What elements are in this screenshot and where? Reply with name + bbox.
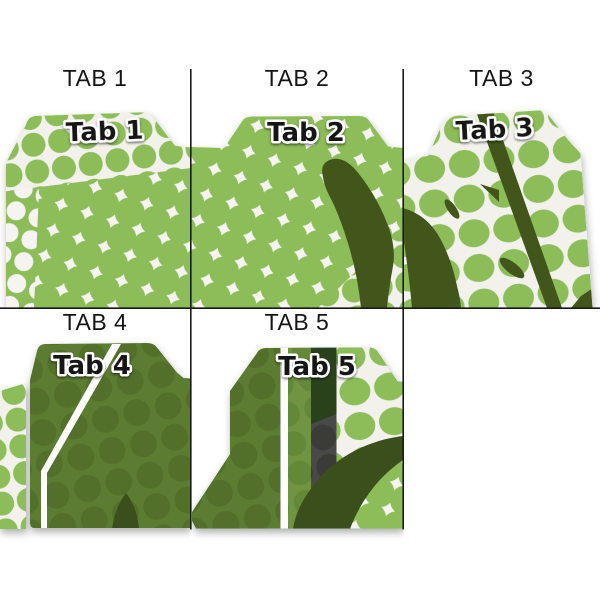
folder-4-back-strip: [0, 383, 26, 529]
folder-option-3[interactable]: Tab 3: [403, 60, 600, 310]
folder-option-1[interactable]: Tab 1: [0, 60, 191, 310]
cell-label-tab-3: TAB 3: [403, 66, 600, 91]
folder-option-5[interactable]: Tab 5: [190, 340, 405, 532]
folder-option-2[interactable]: Tab 2: [190, 60, 404, 310]
product-image-grid: Tab 1 Tab 2: [0, 0, 600, 600]
cell-label-tab-2: TAB 2: [191, 66, 403, 91]
cell-label-tab-4: TAB 4: [0, 310, 190, 335]
cell-label-tab-5: TAB 5: [191, 310, 403, 335]
folder-tab-label-2: Tab 2: [267, 118, 345, 148]
folder-tab-label-5: Tab 5: [278, 352, 356, 382]
folder-option-4[interactable]: Tab 4: [0, 340, 193, 532]
cell-label-tab-1: TAB 1: [0, 66, 190, 91]
folder-tab-label-3: Tab 3: [455, 113, 534, 147]
folder-tab-label-4: Tab 4: [53, 351, 131, 381]
folder-tab-label-1: Tab 1: [65, 116, 144, 149]
